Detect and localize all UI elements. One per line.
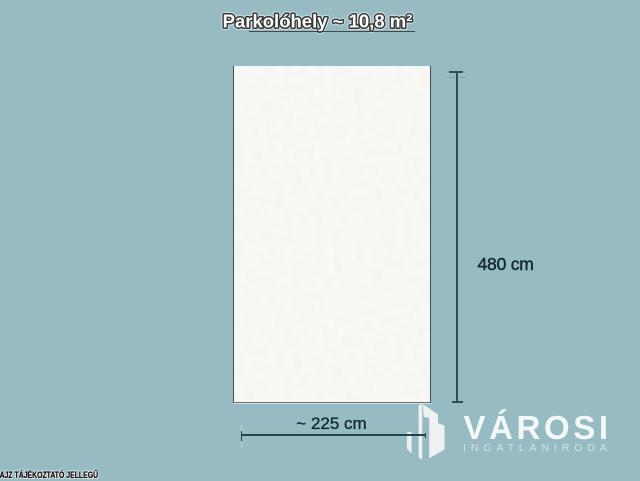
svg-text:Parkolóhely ~ 10,8 m²: Parkolóhely ~ 10,8 m² (223, 10, 413, 31)
